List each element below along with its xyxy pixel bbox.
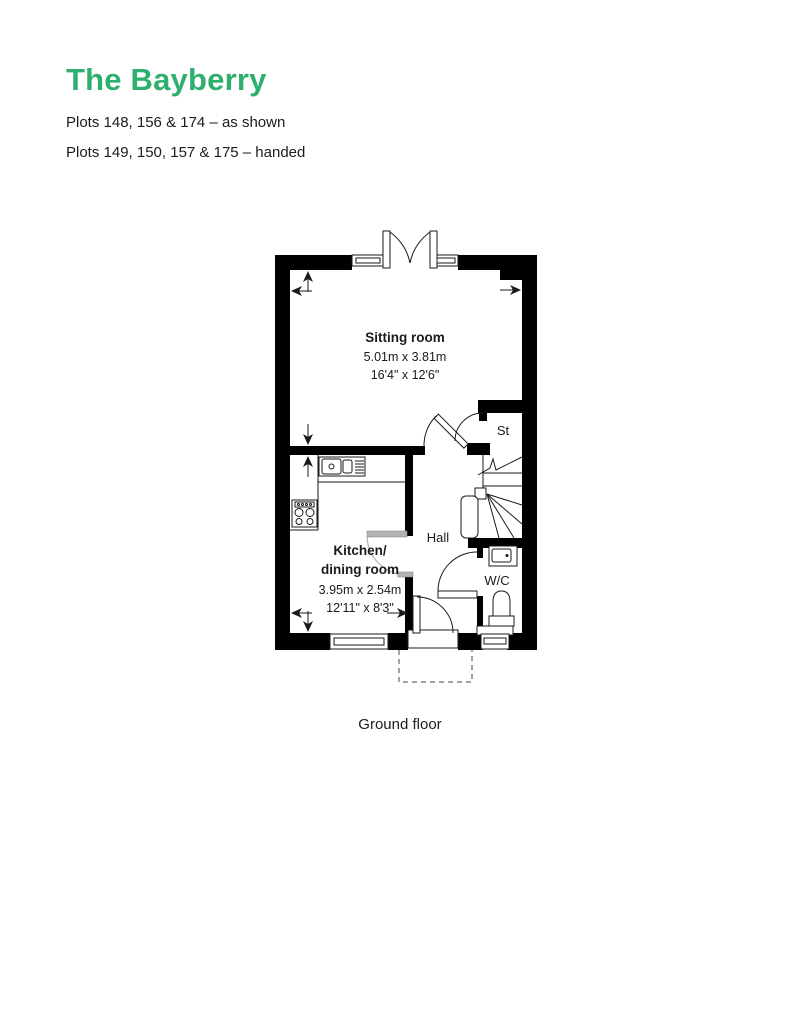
kitchen-imperial: 12'11" x 8'3" [326, 601, 394, 615]
stair-break-line [478, 457, 522, 475]
sitting-room-label: Sitting room [365, 330, 445, 345]
stairs [461, 455, 522, 538]
wall-segment [275, 633, 330, 650]
door-leaf [383, 231, 390, 268]
front-door [408, 596, 458, 648]
door-jamb [398, 572, 413, 577]
wall-segment [467, 443, 490, 455]
wall-segment [290, 446, 425, 455]
door-swing-arc [424, 416, 436, 446]
wc-window [477, 626, 513, 649]
hob-icon [292, 500, 317, 527]
door-leaf [434, 414, 468, 448]
door-swing-arc [417, 597, 453, 633]
door-swing-arc [438, 552, 477, 591]
wall-segment [405, 446, 413, 536]
door-leaf [430, 231, 437, 268]
kitchen-label-line1: Kitchen/ [333, 543, 387, 558]
ground-floor-plan: Sitting room 5.01m x 3.81m 16'4" x 12'6"… [0, 0, 800, 1036]
toilet-icon [489, 591, 514, 626]
wall-segment [477, 548, 483, 558]
wall-segment [405, 572, 413, 633]
basin-icon [489, 546, 517, 566]
store-label: St [497, 423, 510, 438]
stair-winder [487, 494, 514, 538]
hall-label: Hall [427, 530, 450, 545]
wc-door [438, 552, 477, 598]
sitting-room-door [424, 414, 468, 448]
french-doors [352, 231, 458, 272]
handrail [461, 496, 478, 538]
floor-caption: Ground floor [0, 716, 800, 733]
wall-segment [479, 413, 487, 421]
wall-segment [507, 633, 537, 650]
door-leaf [367, 531, 407, 537]
kitchen-label-line2: dining room [321, 562, 399, 577]
door-leaf [438, 591, 477, 598]
stair-winder [487, 494, 499, 538]
wall-segment [522, 255, 537, 650]
window [352, 255, 383, 266]
wall-segment [388, 633, 408, 650]
porch-outline [399, 650, 472, 682]
stair-winder [487, 494, 522, 524]
wall-segment [458, 633, 483, 650]
sitting-room-metric: 5.01m x 3.81m [364, 350, 447, 364]
door-leaf [413, 596, 420, 633]
sitting-room-imperial: 16'4" x 12'6" [371, 368, 440, 382]
wall-segment [275, 255, 290, 650]
walls [275, 255, 537, 650]
sink-icon [319, 457, 365, 476]
wall-segment [478, 400, 537, 413]
kitchen-metric: 3.95m x 2.54m [319, 583, 402, 597]
kitchen-window [330, 634, 388, 649]
wc-label: W/C [484, 573, 509, 588]
